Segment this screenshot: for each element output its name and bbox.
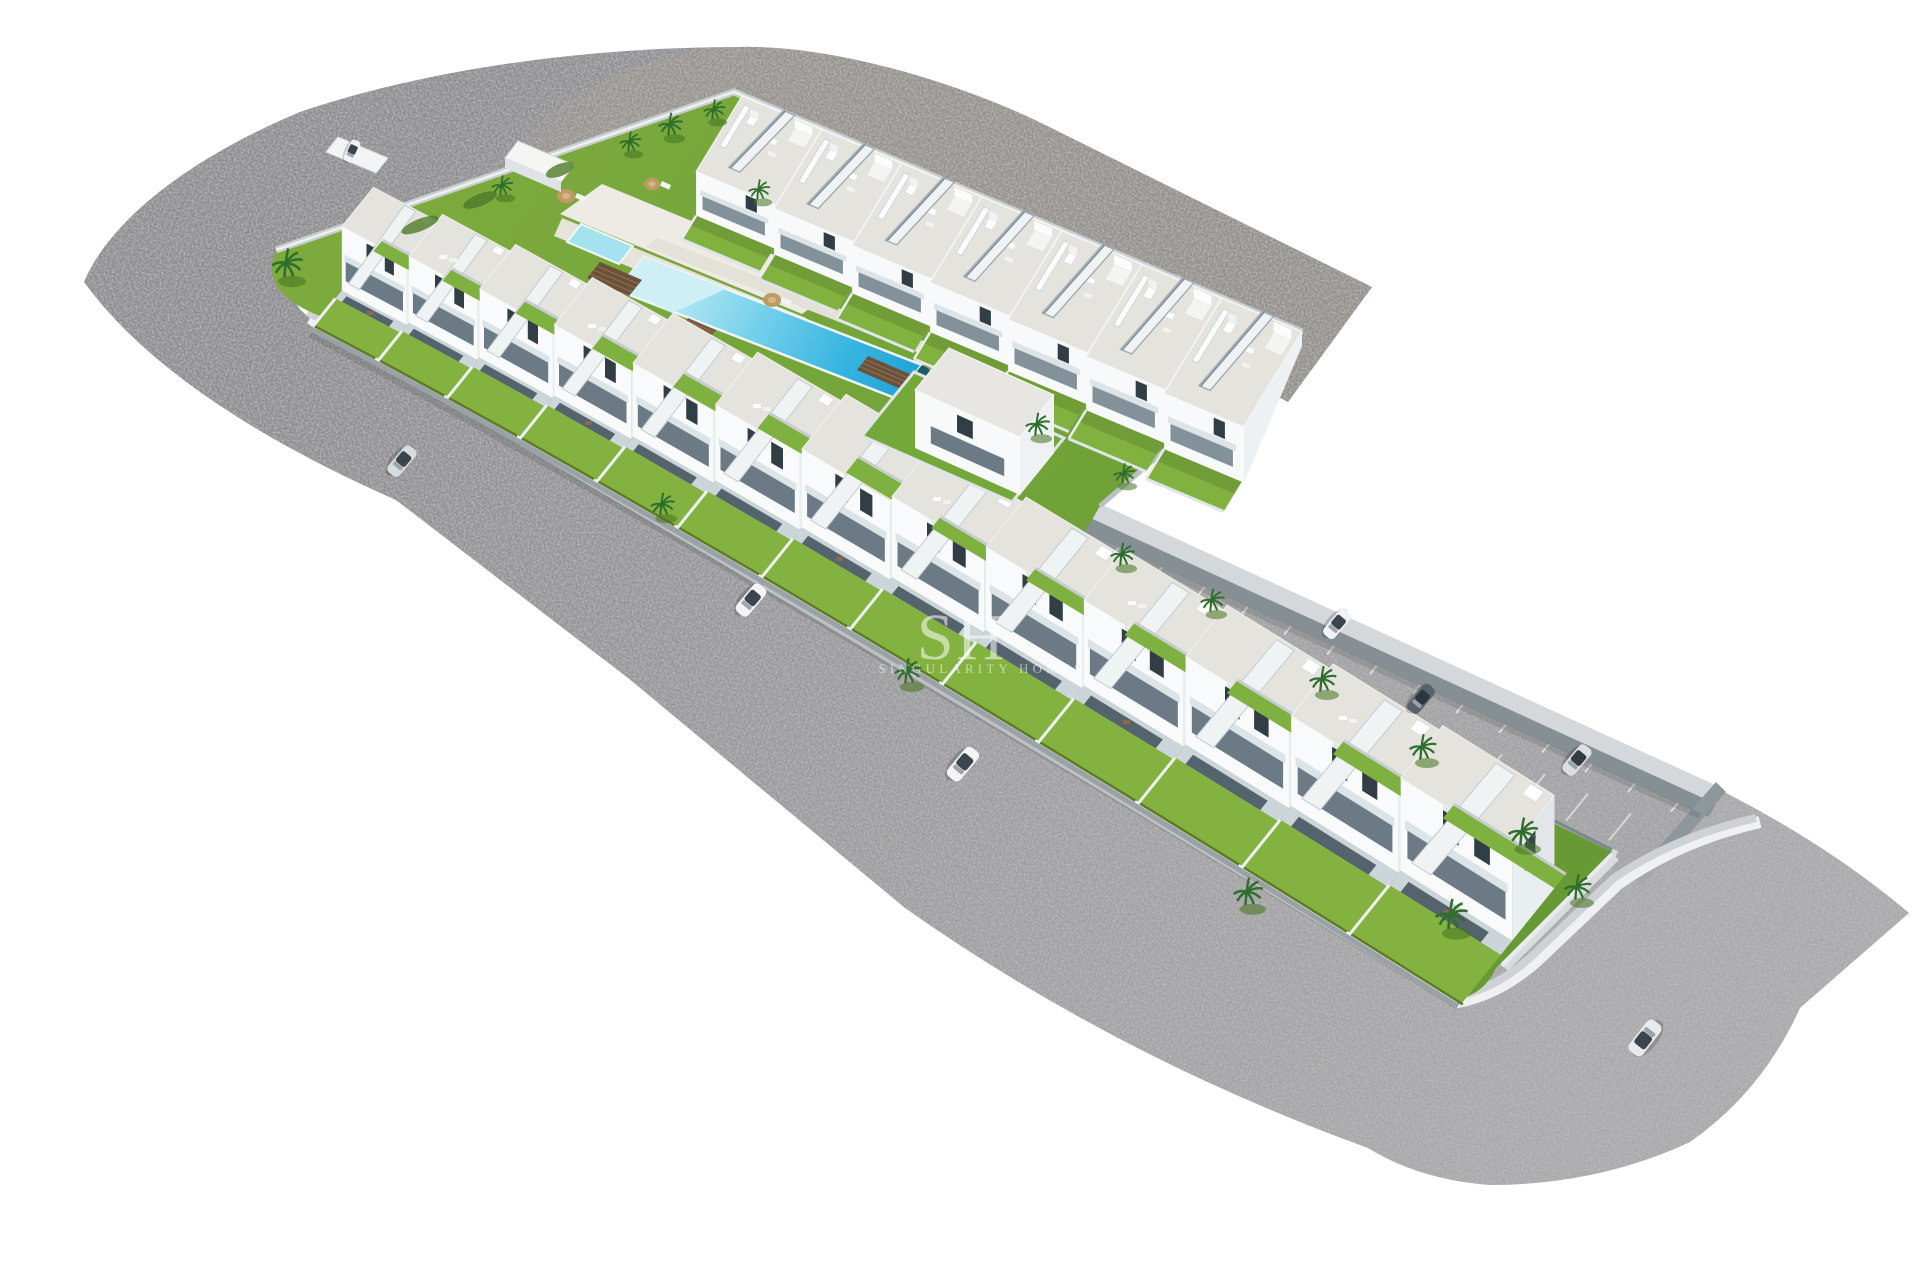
svg-text:SINGULARITY HOMES: SINGULARITY HOMES xyxy=(878,661,1085,676)
